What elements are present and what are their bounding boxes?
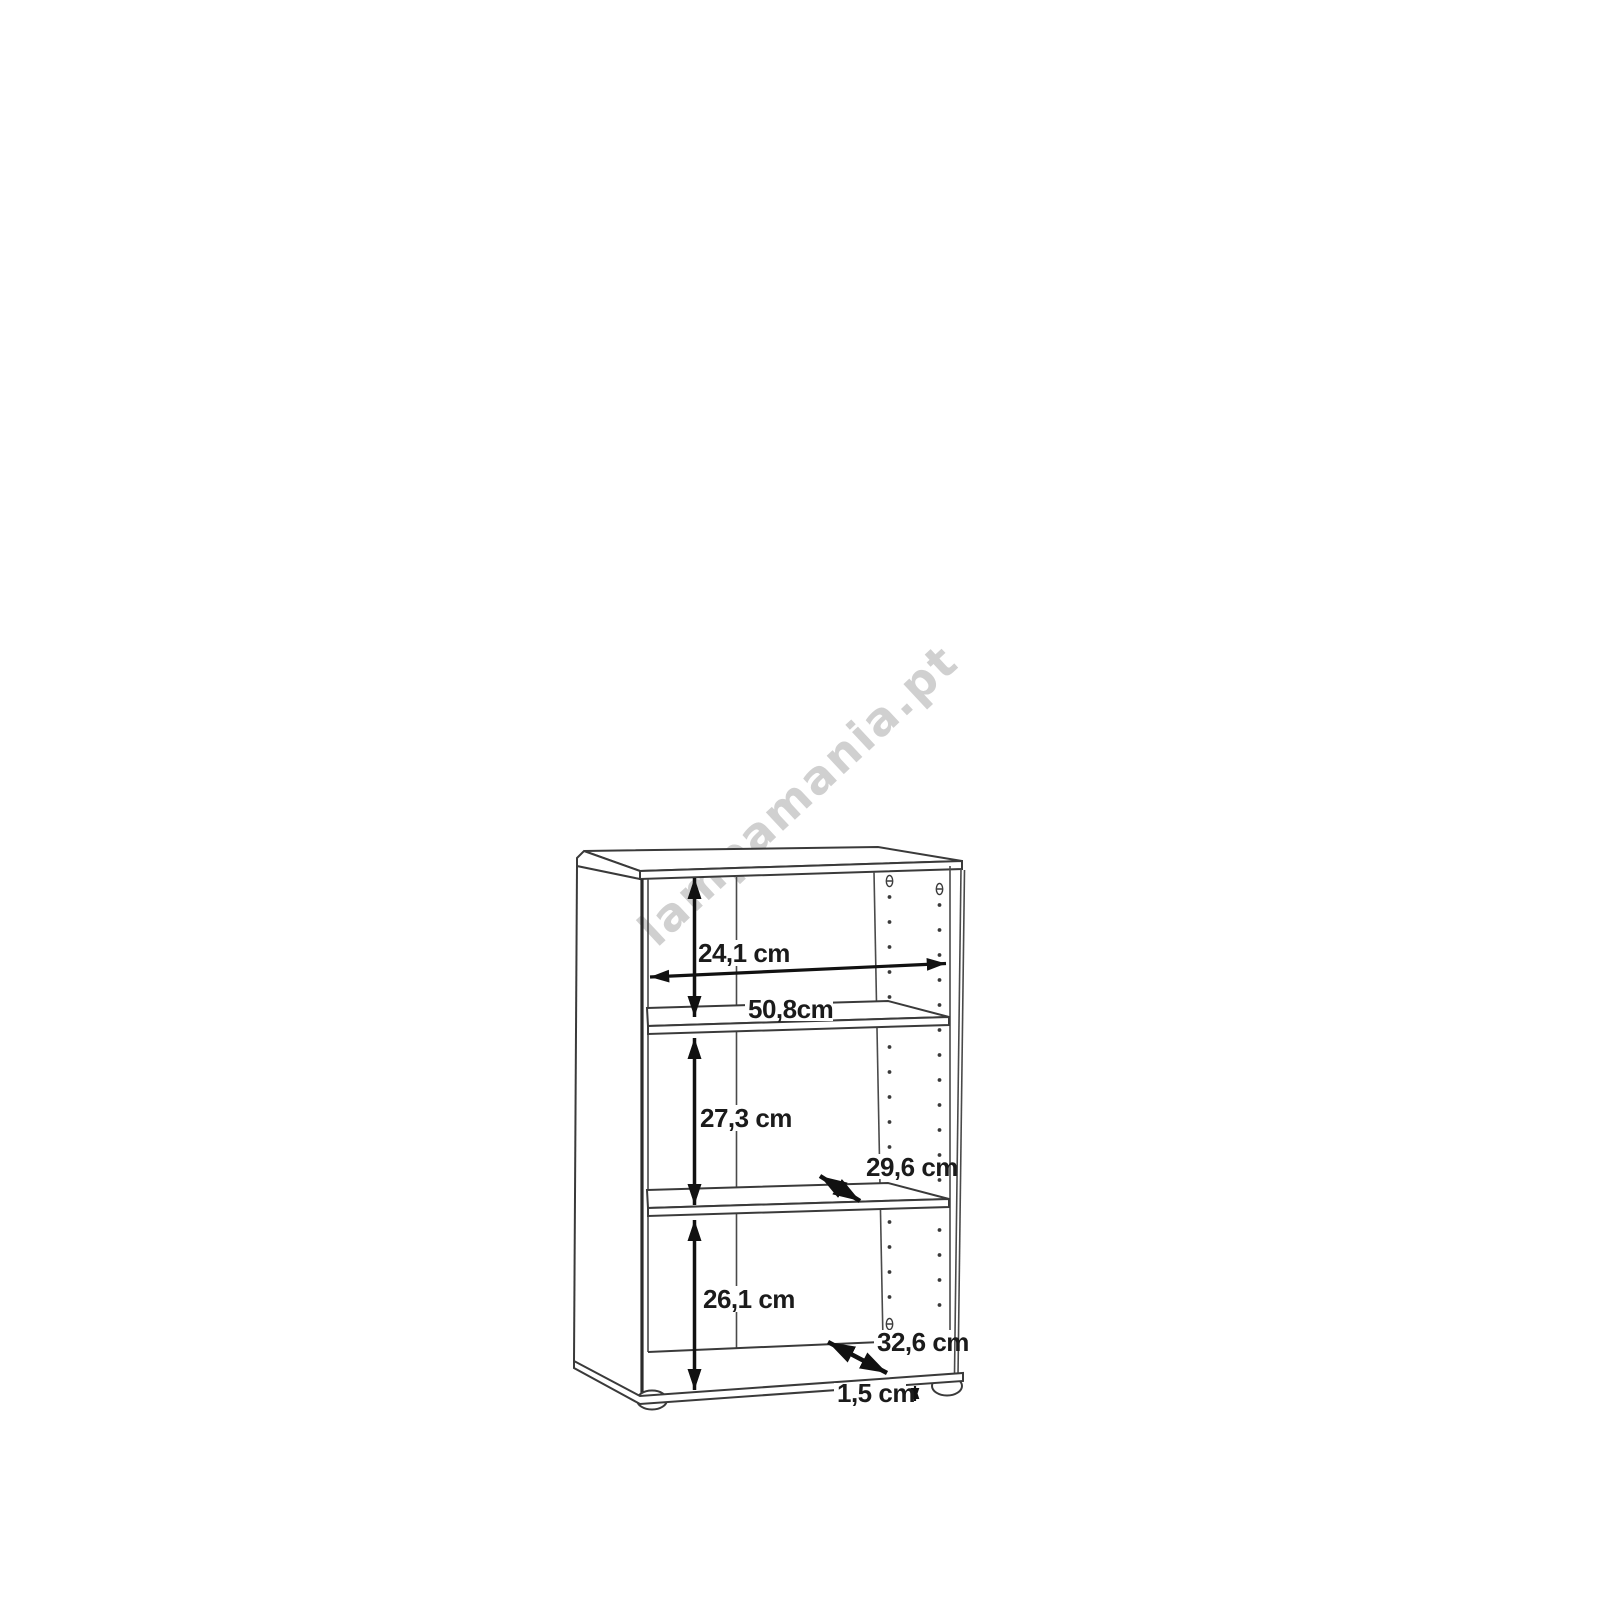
bookcase-dimension-drawing: 24,1 cm 50,8cm 27,3 cm 29,6 cm 26,1 cm 3…	[0, 0, 1600, 1600]
dim-label-foot-height: 1,5 cm	[837, 1378, 915, 1408]
dim-label-middle-compartment-height: 27,3 cm	[700, 1103, 792, 1133]
shelf-pin-holes-right	[936, 883, 942, 1307]
top-panel	[577, 847, 962, 879]
right-panel-outer-edge-1	[955, 869, 962, 1374]
left-panel-outer-edge	[574, 866, 577, 1361]
shelf-pin-holes-left	[886, 875, 892, 1329]
right-panel-outer-edge-2	[958, 870, 965, 1376]
dim-label-top-compartment-height: 24,1 cm	[698, 938, 790, 968]
back-seam-right	[874, 872, 883, 1342]
dimension-arrows	[650, 878, 946, 1401]
dim-label-inner-width: 50,8cm	[748, 994, 833, 1024]
left-side-panel	[574, 866, 648, 1394]
diagram-canvas: lampamania.pt	[0, 0, 1600, 1600]
dim-label-bottom-depth: 32,6 cm	[877, 1327, 969, 1357]
dim-label-shelf-depth: 29,6 cm	[866, 1152, 958, 1182]
shelf-lower	[647, 1183, 949, 1216]
dim-label-bottom-compartment-height: 26,1 cm	[703, 1284, 795, 1314]
right-side-panel	[950, 866, 965, 1376]
